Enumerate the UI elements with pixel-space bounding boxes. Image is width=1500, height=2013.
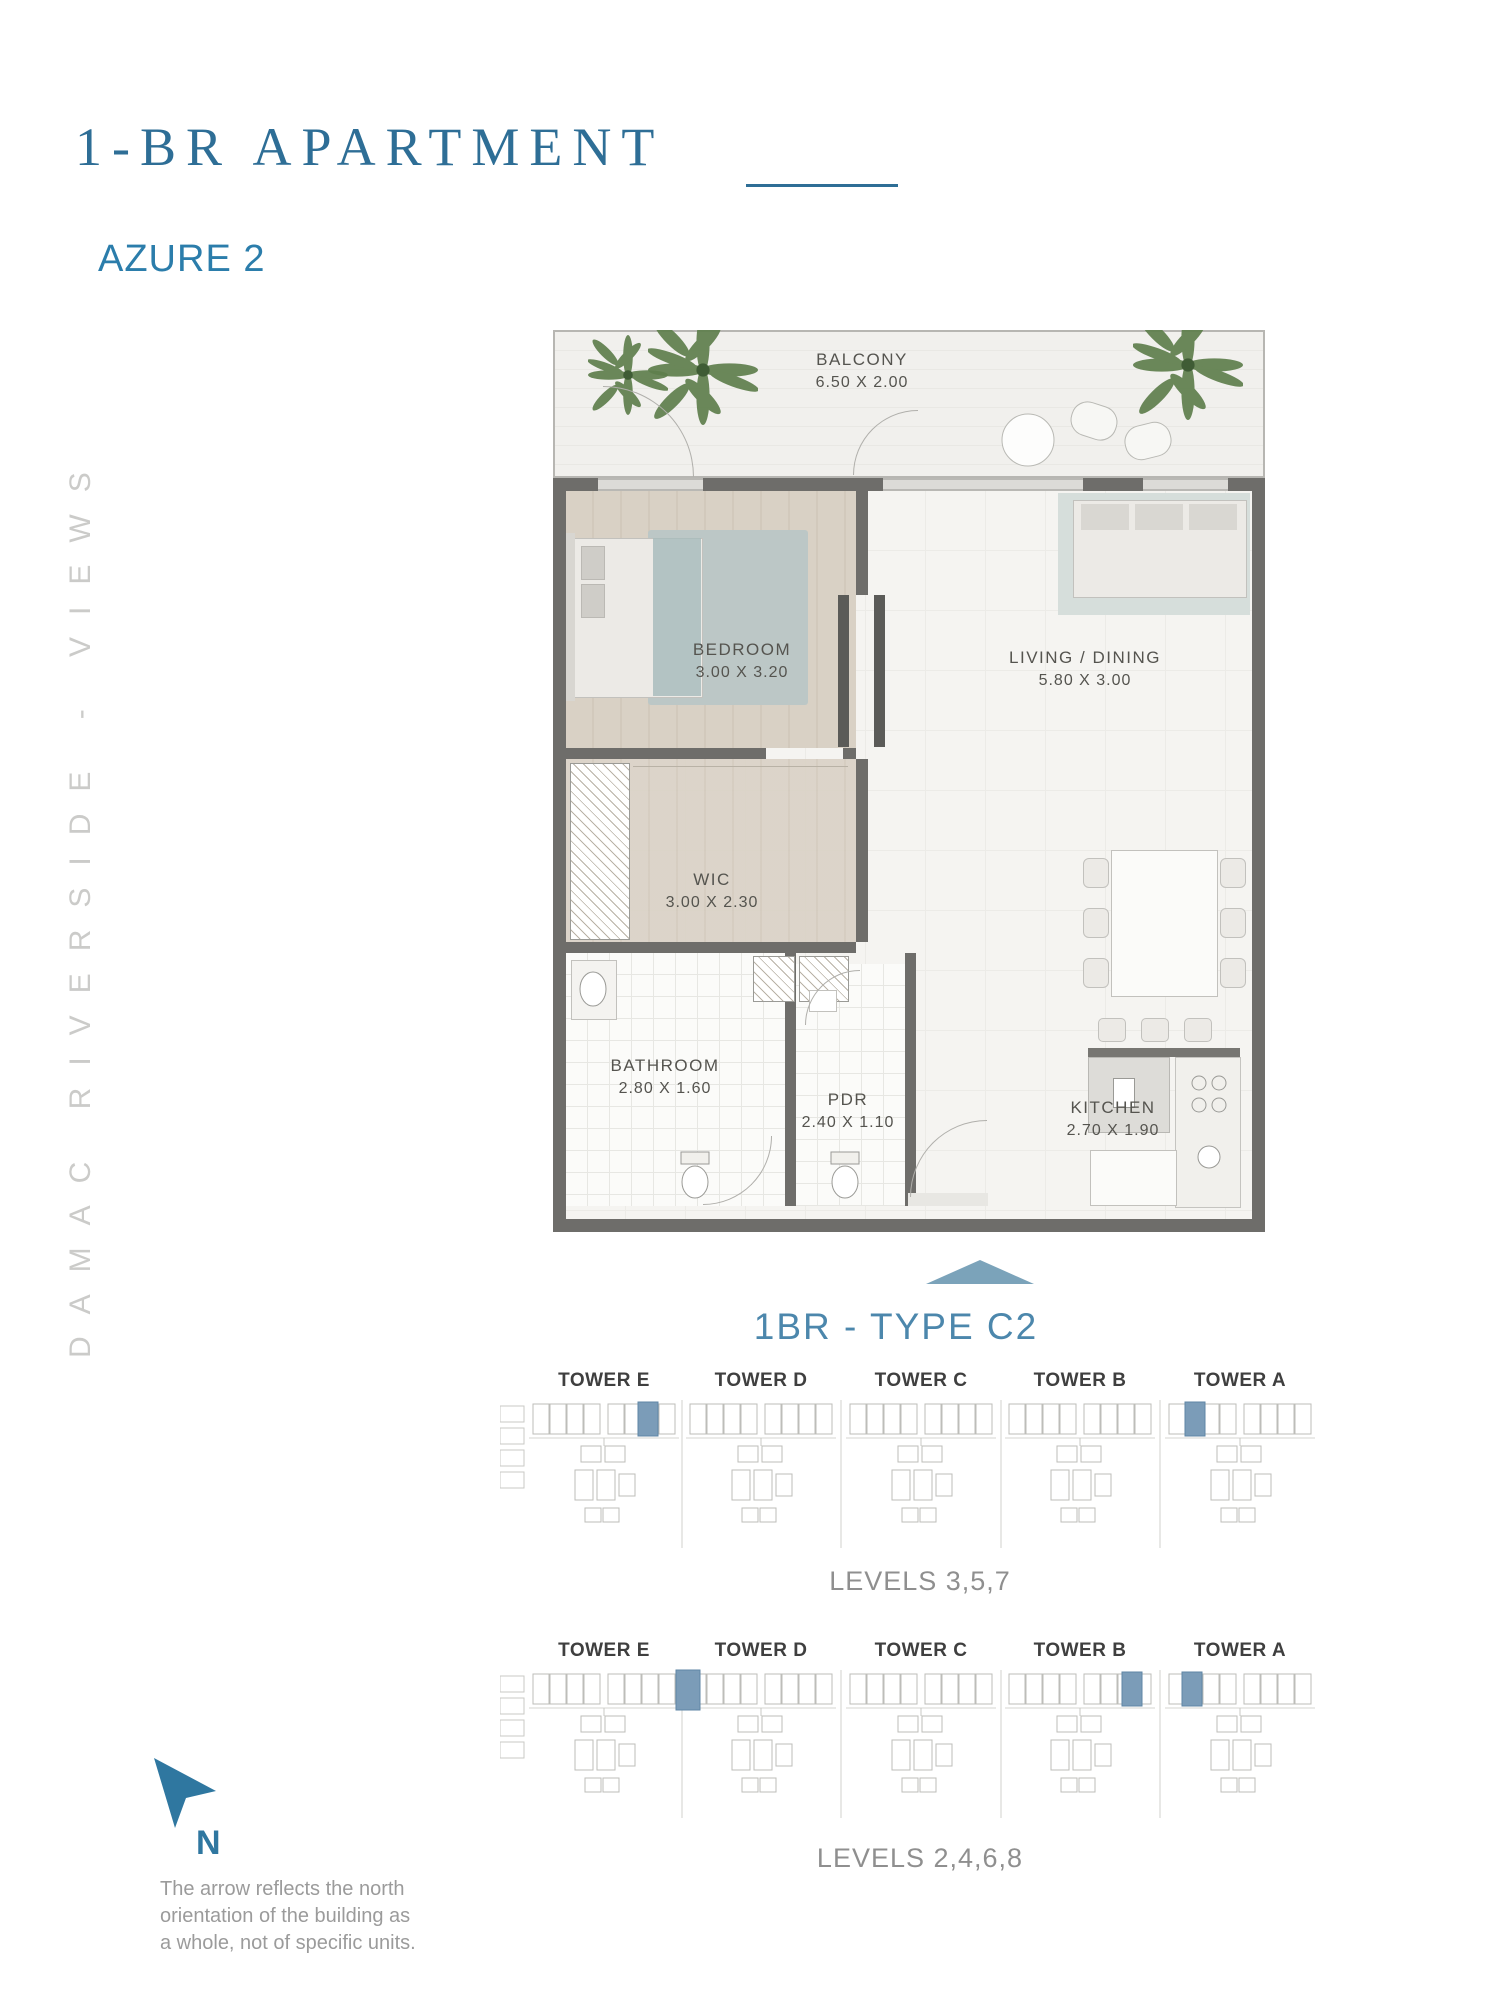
partition-wall (856, 759, 868, 942)
room-dims-pdr: 2.40 X 1.10 (802, 1114, 895, 1132)
wic-bathroom-wall (566, 942, 856, 953)
dining-chair (1083, 958, 1109, 988)
page-subtitle: AZURE 2 (98, 238, 265, 281)
living-window (1143, 478, 1228, 491)
room-label-bedroom: BEDROOM (693, 640, 791, 660)
note-line-1: The arrow reflects the north (160, 1876, 416, 1903)
key-plan-levels-2468: TOWER E TOWER D TOWER C TOWER B TOWER A (500, 1640, 1320, 1840)
room-label-pdr: PDR (828, 1090, 868, 1110)
kitchen-appliance-box (1090, 1150, 1177, 1206)
room-label-balcony: BALCONY (816, 350, 908, 370)
north-letter: N (196, 1824, 221, 1863)
room-dims-bedroom: 3.00 X 3.20 (696, 664, 789, 682)
kitchen-bar-counter (1088, 1048, 1240, 1057)
sofa-cushion (1189, 504, 1237, 530)
bedroom-wic-wall (566, 748, 766, 759)
floor-plan: BALCONY 6.50 X 2.00 BEDROOM 3.00 X 3.20 … (553, 330, 1265, 1232)
room-dims-kitchen: 2.70 X 1.90 (1067, 1122, 1160, 1140)
tower-label: TOWER B (1034, 1370, 1127, 1392)
wardrobe-hatch (570, 763, 630, 940)
tower-label: TOWER C (875, 1640, 968, 1662)
page-title: 1-BR APARTMENT (75, 116, 664, 178)
north-arrow-icon (152, 1756, 224, 1830)
side-watermark-text: DAMAC RIVERSIDE - VIEWS (64, 358, 98, 1358)
entrance-pointer-triangle (926, 1260, 1034, 1284)
bedroom-balcony-door (598, 478, 703, 491)
note-line-3: a whole, not of specific units. (160, 1930, 416, 1957)
room-label-kitchen: KITCHEN (1070, 1098, 1155, 1118)
room-dims-wic: 3.00 X 2.30 (666, 894, 759, 912)
partition-wall (856, 491, 868, 595)
dining-chair (1220, 908, 1246, 938)
sofa-cushion (1135, 504, 1183, 530)
title-rule (746, 184, 898, 187)
room-dims-balcony: 6.50 X 2.00 (816, 374, 909, 392)
levels-label-2: LEVELS 2,4,6,8 (817, 1843, 1023, 1874)
bar-stool (1141, 1018, 1169, 1042)
dining-chair (1083, 908, 1109, 938)
wic-shelf-line (633, 766, 848, 767)
bedroom-wic-wall-stub (843, 748, 856, 759)
room-label-living: LIVING / DINING (1009, 648, 1161, 668)
tower-label: TOWER A (1194, 1640, 1286, 1662)
key-plan-diagram (500, 1668, 1320, 1828)
room-dims-living: 5.80 X 3.00 (1039, 672, 1132, 690)
unit-type-label: 1BR - TYPE C2 (754, 1306, 1038, 1348)
dining-chair (1220, 858, 1246, 888)
living-balcony-door (883, 478, 1083, 491)
dining-table (1111, 850, 1218, 997)
tower-label: TOWER D (715, 1370, 808, 1392)
sofa-cushion (1081, 504, 1129, 530)
room-dims-bathroom: 2.80 X 1.60 (619, 1080, 712, 1098)
tower-label: TOWER B (1034, 1640, 1127, 1662)
tower-label: TOWER E (558, 1370, 650, 1392)
levels-label-1: LEVELS 3,5,7 (829, 1566, 1011, 1597)
bed-throw (653, 538, 701, 696)
brochure-page: 1-BR APARTMENT AZURE 2 DAMAC RIVERSIDE -… (0, 0, 1500, 2013)
bed-pillow (581, 546, 605, 580)
room-label-bathroom: BATHROOM (611, 1056, 720, 1076)
sliding-door-panel (874, 595, 885, 747)
north-note-text: The arrow reflects the north orientation… (160, 1876, 416, 1957)
key-plan-diagram (500, 1398, 1320, 1558)
tower-label: TOWER A (1194, 1370, 1286, 1392)
dining-chair (1083, 858, 1109, 888)
bed-headboard (566, 533, 575, 701)
tower-label: TOWER D (715, 1640, 808, 1662)
tower-label: TOWER C (875, 1370, 968, 1392)
dining-chair (1220, 958, 1246, 988)
kitchen-appliances (1175, 1057, 1239, 1206)
bed-pillow (581, 584, 605, 618)
shaft-box (753, 956, 795, 1002)
room-label-wic: WIC (693, 870, 731, 890)
sliding-door-panel (838, 595, 849, 747)
key-plan-levels-357: TOWER E TOWER D TOWER C TOWER B TOWER A (500, 1370, 1320, 1570)
bar-stool (1098, 1018, 1126, 1042)
note-line-2: orientation of the building as (160, 1903, 416, 1930)
bath-basin (571, 960, 615, 1018)
tower-label: TOWER E (558, 1640, 650, 1662)
pdr-toilet (823, 1150, 867, 1202)
bar-stool (1184, 1018, 1212, 1042)
